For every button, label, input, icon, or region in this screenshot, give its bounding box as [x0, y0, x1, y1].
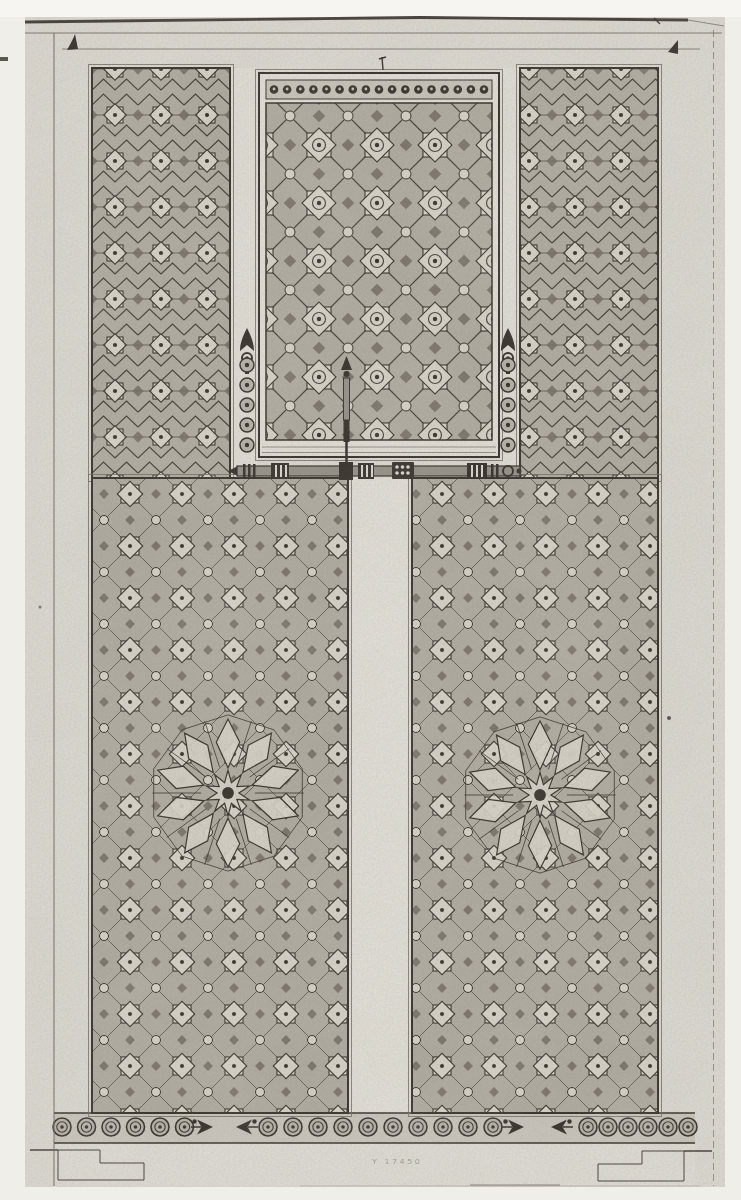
left-margin-dash [0, 57, 8, 61]
engraved-plate-scan: Y 17450 [0, 0, 741, 1200]
plate-drawing [0, 0, 741, 1200]
grain-overlay [25, 17, 725, 1187]
paper-top-strip [0, 0, 741, 17]
plate-mark: Y 17450 [372, 1157, 422, 1165]
